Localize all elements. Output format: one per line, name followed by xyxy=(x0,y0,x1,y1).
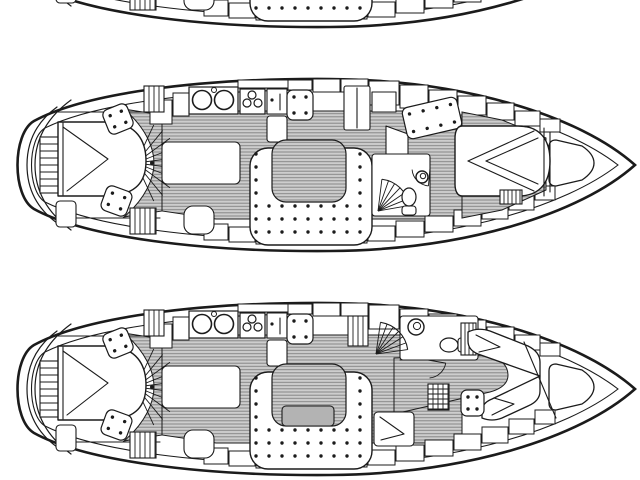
upholstery-dot xyxy=(306,441,309,444)
galley-fridge xyxy=(267,116,287,142)
upholstery-dot xyxy=(332,204,335,207)
boat-plan-bottom xyxy=(18,303,636,475)
upholstery-dot xyxy=(254,191,257,194)
upholstery-dot xyxy=(319,454,322,457)
upholstery-dot xyxy=(280,441,283,444)
upholstery-dot xyxy=(358,178,361,181)
galley-island-counter xyxy=(162,142,240,184)
upholstery-dot xyxy=(358,191,361,194)
upholstery-dot xyxy=(358,152,361,155)
upholstery-dot xyxy=(254,6,257,9)
upholstery-dot xyxy=(358,204,361,207)
forward-step-hatch xyxy=(500,190,522,204)
galley-stove-burners xyxy=(240,313,265,338)
upholstery-dot xyxy=(267,230,270,233)
toilet xyxy=(402,188,416,215)
upholstery-dot xyxy=(358,165,361,168)
upholstery-dot xyxy=(267,454,270,457)
saloon-seat-port xyxy=(287,90,313,120)
upholstery-dot xyxy=(254,402,257,405)
upholstery-dot xyxy=(345,428,348,431)
aft-starboard-chair xyxy=(184,430,214,458)
upholstery-dot xyxy=(267,441,270,444)
boat-plan-middle xyxy=(18,79,636,251)
aft-starboard-chair xyxy=(184,206,214,234)
upholstery-dot xyxy=(358,6,361,9)
upholstery-dot xyxy=(306,6,309,9)
galley-island-counter xyxy=(162,366,240,408)
upholstery-dot xyxy=(292,319,295,322)
locker xyxy=(372,92,396,112)
upholstery-dot xyxy=(254,217,257,220)
upholstery-dot xyxy=(280,204,283,207)
upholstery-dot xyxy=(306,428,309,431)
upholstery-dot xyxy=(345,204,348,207)
upholstery-dot xyxy=(267,217,270,220)
worktop-knob xyxy=(270,322,273,325)
upholstery-dot xyxy=(345,6,348,9)
upholstery-dot xyxy=(280,6,283,9)
upholstery-dot xyxy=(254,152,257,155)
upholstery-dot xyxy=(475,407,478,410)
upholstery-dot xyxy=(267,204,270,207)
upholstery-dot xyxy=(319,204,322,207)
upholstery-dot xyxy=(293,454,296,457)
upholstery-dot xyxy=(466,407,469,410)
upholstery-dot xyxy=(254,441,257,444)
galley-worktop xyxy=(267,89,287,114)
upholstery-dot xyxy=(267,6,270,9)
upholstery-dot xyxy=(293,6,296,9)
upholstery-dot xyxy=(293,428,296,431)
upholstery-dot xyxy=(345,454,348,457)
upholstery-dot xyxy=(280,217,283,220)
upholstery-dot xyxy=(358,376,361,379)
saloon-table xyxy=(282,406,334,426)
upholstery-dot xyxy=(358,230,361,233)
upholstery-dot xyxy=(358,402,361,405)
upholstery-dot xyxy=(345,217,348,220)
upholstery-dot xyxy=(254,178,257,181)
aft-hanging-locker-bottom xyxy=(130,208,156,234)
forward-ladder xyxy=(428,384,449,410)
mast-step xyxy=(150,385,154,389)
yacht-layout-diagram xyxy=(0,0,640,480)
upholstery-dot xyxy=(332,428,335,431)
upholstery-dot xyxy=(358,454,361,457)
forward-seat xyxy=(461,390,484,416)
upholstery-dot xyxy=(304,319,307,322)
mast-step xyxy=(150,161,154,165)
upholstery-dot xyxy=(304,95,307,98)
upholstery-dot xyxy=(254,415,257,418)
upholstery-dot xyxy=(254,454,257,457)
galley-twin-sinks xyxy=(189,87,238,114)
upholstery-dot xyxy=(358,217,361,220)
aft-hanging-locker-top xyxy=(144,86,164,112)
upholstery-dot xyxy=(332,441,335,444)
worktop-knob xyxy=(270,98,273,101)
upholstery-dot xyxy=(358,415,361,418)
companionway-ladder xyxy=(348,316,368,346)
upholstery-dot xyxy=(306,217,309,220)
upholstery-dot xyxy=(332,230,335,233)
upholstery-dot xyxy=(304,111,307,114)
upholstery-dot xyxy=(280,428,283,431)
u-shaped-settee xyxy=(250,140,372,245)
upholstery-dot xyxy=(319,441,322,444)
upholstery-dot xyxy=(332,217,335,220)
upholstery-dot xyxy=(304,335,307,338)
u-shaped-settee xyxy=(250,0,372,21)
upholstery-dot xyxy=(358,389,361,392)
aft-hanging-locker-bottom xyxy=(130,0,156,10)
upholstery-dot xyxy=(466,395,469,398)
upholstery-dot xyxy=(254,230,257,233)
yacht-layout-figure xyxy=(0,0,640,480)
upholstery-dot xyxy=(319,428,322,431)
galley-fridge xyxy=(267,340,287,366)
upholstery-dot xyxy=(254,376,257,379)
upholstery-dot xyxy=(319,230,322,233)
upholstery-dot xyxy=(280,454,283,457)
upholstery-dot xyxy=(293,204,296,207)
upholstery-dot xyxy=(267,428,270,431)
upholstery-dot xyxy=(358,428,361,431)
upholstery-dot xyxy=(475,395,478,398)
aft-cabin-nightstand xyxy=(56,201,76,227)
aft-hanging-locker-bottom xyxy=(130,432,156,458)
upholstery-dot xyxy=(254,389,257,392)
upholstery-dot xyxy=(345,441,348,444)
head-washbasin xyxy=(408,319,424,335)
upholstery-dot xyxy=(293,230,296,233)
aft-cabin-nightstand xyxy=(56,425,76,451)
upholstery-dot xyxy=(332,6,335,9)
upholstery-dot xyxy=(254,204,257,207)
upholstery-dot xyxy=(306,454,309,457)
aft-starboard-chair xyxy=(184,0,214,10)
upholstery-dot xyxy=(358,441,361,444)
upholstery-dot xyxy=(306,230,309,233)
boat-plan-top xyxy=(18,0,636,27)
upholstery-dot xyxy=(292,111,295,114)
aft-hanging-locker-top xyxy=(144,310,164,336)
upholstery-dot xyxy=(319,217,322,220)
upholstery-dot xyxy=(306,204,309,207)
upholstery-dot xyxy=(332,454,335,457)
upholstery-dot xyxy=(319,6,322,9)
upholstery-dot xyxy=(293,441,296,444)
galley-stove-burners xyxy=(240,89,265,114)
upholstery-dot xyxy=(254,165,257,168)
upholstery-dot xyxy=(254,428,257,431)
upholstery-dot xyxy=(345,230,348,233)
aft-cabin-nightstand xyxy=(56,0,76,3)
upholstery-dot xyxy=(280,230,283,233)
saloon-seat-port xyxy=(287,314,313,344)
upholstery-dot xyxy=(293,217,296,220)
upholstery-dot xyxy=(292,335,295,338)
galley-twin-sinks xyxy=(189,311,238,338)
galley-worktop xyxy=(267,313,287,338)
upholstery-dot xyxy=(292,95,295,98)
